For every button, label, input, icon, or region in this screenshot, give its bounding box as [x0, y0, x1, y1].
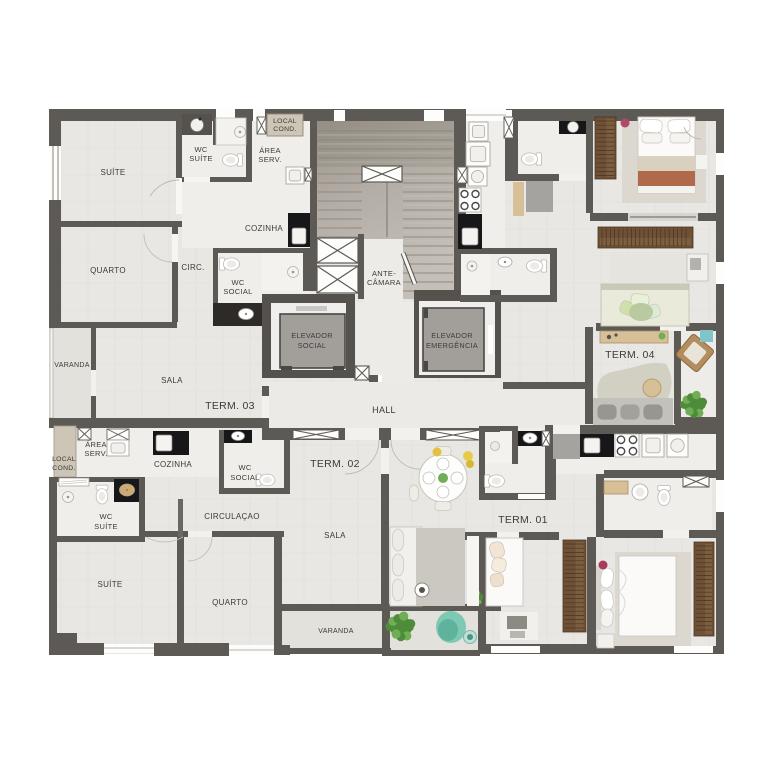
svg-text:SUÍTE: SUÍTE: [100, 168, 125, 177]
svg-text:VARANDA: VARANDA: [318, 628, 353, 635]
svg-text:ELEVADOR: ELEVADOR: [431, 331, 473, 340]
svg-text:QUARTO: QUARTO: [90, 266, 126, 275]
svg-text:CÂMARA: CÂMARA: [367, 278, 401, 287]
svg-text:TERM. 03: TERM. 03: [205, 400, 255, 412]
svg-text:WC: WC: [238, 463, 251, 472]
svg-text:CIRCULAÇAO: CIRCULAÇAO: [204, 512, 259, 521]
svg-text:TERM. 01: TERM. 01: [498, 514, 548, 526]
svg-text:SUÍTE: SUÍTE: [97, 580, 122, 589]
svg-text:SUÍTE: SUÍTE: [94, 522, 118, 531]
svg-text:HALL: HALL: [372, 405, 396, 415]
svg-text:LOCAL: LOCAL: [273, 118, 297, 125]
svg-text:ÁREA: ÁREA: [259, 146, 281, 155]
svg-text:WC: WC: [194, 145, 207, 154]
svg-text:TERM. 04: TERM. 04: [605, 349, 655, 361]
svg-text:ELEVADOR: ELEVADOR: [291, 331, 333, 340]
svg-text:COZINHA: COZINHA: [154, 460, 192, 469]
svg-text:ÁREA: ÁREA: [85, 440, 107, 449]
svg-text:SOCIAL: SOCIAL: [223, 287, 252, 296]
svg-text:TERM. 02: TERM. 02: [310, 458, 360, 470]
svg-text:WC: WC: [231, 278, 244, 287]
svg-text:SERV.: SERV.: [258, 155, 281, 164]
svg-text:SALA: SALA: [324, 531, 346, 540]
svg-text:SOCIAL: SOCIAL: [230, 473, 259, 482]
svg-text:EMERGÊNCIA: EMERGÊNCIA: [426, 341, 478, 350]
svg-text:QUARTO: QUARTO: [212, 598, 248, 607]
svg-text:SUÍTE: SUÍTE: [189, 154, 213, 163]
svg-text:SOCIAL: SOCIAL: [298, 341, 327, 350]
svg-text:SERV.: SERV.: [84, 449, 107, 458]
svg-text:COND.: COND.: [52, 465, 75, 472]
svg-text:WC: WC: [99, 512, 112, 521]
svg-text:SALA: SALA: [161, 376, 183, 385]
svg-text:CIRC.: CIRC.: [181, 263, 204, 272]
svg-text:VARANDA: VARANDA: [54, 362, 89, 369]
svg-text:LOCAL: LOCAL: [52, 456, 76, 463]
svg-text:COZINHA: COZINHA: [245, 224, 283, 233]
svg-text:COND.: COND.: [273, 126, 296, 133]
svg-text:ANTE-: ANTE-: [372, 269, 396, 278]
